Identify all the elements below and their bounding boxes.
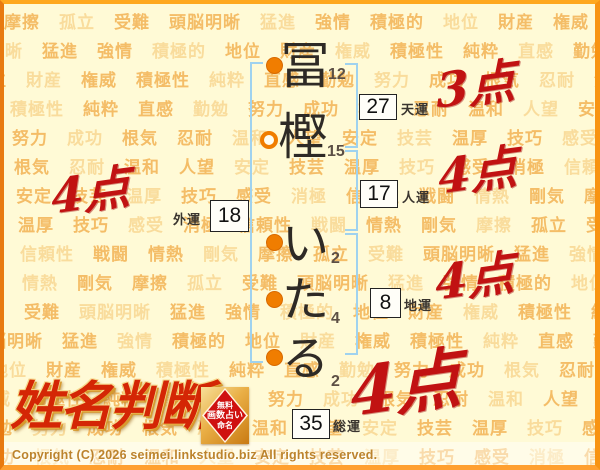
bg-word: 積極的	[172, 332, 226, 351]
bg-word: 努力	[374, 71, 410, 90]
bg-word: 強情	[315, 13, 351, 32]
bg-word: 純粋	[209, 71, 245, 90]
bg-word: 頭脳明晰	[169, 13, 241, 32]
bg-word: 情熱	[22, 274, 58, 293]
name-char-5: る	[282, 335, 329, 382]
stroke-count-1: 12	[328, 66, 346, 84]
copyright-text: Copyright (C) 2026 seimei.linkstudio.biz…	[12, 448, 377, 462]
bracket-gaiun	[250, 62, 263, 363]
bg-word: 積極性	[136, 71, 190, 90]
bg-word: 猛進	[260, 13, 296, 32]
bg-word: 純粋	[483, 332, 519, 351]
bg-word: 安定	[578, 100, 595, 119]
bg-word: 感受	[128, 216, 164, 235]
bg-word: 頭脳明晰	[4, 332, 43, 351]
bg-word: 忍耐	[177, 129, 213, 148]
bg-word: 摩擦	[132, 274, 168, 293]
bg-word: 感受	[582, 419, 595, 438]
bg-word: 孤立	[187, 274, 223, 293]
tenun-score: 3点	[436, 60, 516, 114]
bg-word: 権威	[335, 42, 371, 61]
bg-word: 純粋	[83, 100, 119, 119]
bg-word: 摩擦	[476, 216, 512, 235]
bg-word: 猛進	[62, 332, 98, 351]
bg-word: 勤勉	[573, 42, 595, 61]
bg-word: 剛気	[203, 245, 239, 264]
soun-value-box: 35	[292, 409, 330, 439]
bg-word: 摩擦	[584, 187, 595, 206]
bg-word: 信頼性	[20, 245, 74, 264]
bg-word: 権威	[81, 71, 117, 90]
bg-word: 積極的	[370, 13, 424, 32]
jinun-value-box: 17	[360, 180, 398, 208]
bg-word: 温厚	[472, 419, 508, 438]
gaiun-label: 外運	[173, 209, 201, 228]
bg-word: 積極性	[10, 100, 64, 119]
bg-word: 温和	[488, 390, 524, 409]
bg-word: 積極的	[152, 42, 206, 61]
bracket-jinun	[345, 150, 358, 231]
gaiun-value-box: 18	[210, 200, 249, 232]
bg-word: 地位	[571, 274, 595, 293]
bg-word: 強情	[569, 245, 595, 264]
bg-word: 直感	[518, 42, 554, 61]
jinun-score: 4点	[438, 146, 518, 200]
bg-word-row: 摩擦孤立受難頭脳明晰猛進強情積極的地位財産権威積極性純粋直感勤勉	[4, 8, 595, 33]
gaiun-score: 4点	[51, 166, 131, 220]
soun-score: 4点	[350, 348, 463, 423]
bg-word: 勤勉	[593, 332, 595, 351]
bg-word: 純粋	[229, 361, 265, 380]
stroke-count-4: 4	[331, 310, 340, 328]
bg-word: 地位	[225, 42, 261, 61]
bg-word: 猛進	[170, 303, 206, 322]
bg-word: 努力	[12, 129, 48, 148]
chiun-label: 地運	[404, 295, 432, 314]
bg-word: 感受	[562, 129, 595, 148]
bg-word: 根気	[122, 129, 158, 148]
bg-word: 安定	[16, 187, 52, 206]
chiun-value-box: 8	[370, 288, 401, 318]
seal-line-1: 無料	[217, 401, 233, 410]
bg-word: 温和	[252, 419, 288, 438]
stroke-count-3: 2	[331, 250, 340, 268]
bg-word: 積極性	[518, 303, 572, 322]
jinun-label: 人運	[402, 187, 430, 206]
bg-word: 受難	[368, 245, 404, 264]
bg-word: 孤立	[4, 303, 5, 322]
bg-word: 情熱	[148, 245, 184, 264]
name-char-4: た	[282, 276, 329, 323]
bg-word: 技巧	[527, 419, 563, 438]
name-char-3: い	[282, 220, 329, 267]
bg-word: 忍耐	[559, 361, 595, 380]
bg-word: 温厚	[126, 187, 162, 206]
bg-word: 人望	[179, 158, 215, 177]
stroke-count-2: 15	[327, 143, 345, 161]
bg-word: 成功	[67, 129, 103, 148]
bg-word: 受難	[24, 303, 60, 322]
site-logo[interactable]: 姓名判断	[10, 378, 210, 435]
bg-word: 人望	[543, 390, 579, 409]
bg-word: 権威	[553, 13, 589, 32]
seimei-handan-result-page: 摩擦孤立受難頭脳明晰猛進強情積極的地位財産権威積極性純粋直感勤勉頭脳明晰猛進強情…	[0, 0, 600, 470]
bg-word: 忍耐	[539, 71, 575, 90]
bg-word: 努力	[268, 390, 304, 409]
seal-text: 無料 画数占い 命名	[201, 387, 249, 444]
tenun-label: 天運	[401, 99, 429, 118]
bg-word: 地位	[4, 71, 7, 90]
bg-word: 孤立	[59, 13, 95, 32]
bg-word: 技芸	[397, 129, 433, 148]
bracket-tenun	[345, 63, 358, 148]
bg-word: 強情	[97, 42, 133, 61]
stroke-marker	[260, 131, 278, 149]
bg-word: 情熱	[366, 216, 402, 235]
bg-word: 摩擦	[4, 13, 40, 32]
seal-line-2: 画数占い	[207, 410, 243, 420]
bg-word: 直感	[138, 100, 174, 119]
bg-word: 強情	[117, 332, 153, 351]
bg-word: 純粋	[591, 303, 595, 322]
seal-badge-link[interactable]: 無料 画数占い 命名	[201, 387, 249, 444]
bg-word: 頭脳明晰	[4, 42, 23, 61]
stroke-marker	[266, 234, 283, 251]
stroke-marker	[266, 291, 283, 308]
bg-word: 勤勉	[193, 100, 229, 119]
bg-word: 財産	[498, 13, 534, 32]
bg-word: 消極	[291, 187, 327, 206]
bg-word: 直感	[538, 332, 574, 351]
name-char-1: 冨	[280, 41, 330, 91]
bg-word: 温厚	[18, 216, 54, 235]
bg-word: 剛気	[421, 216, 457, 235]
stroke-marker	[266, 349, 283, 366]
bg-word: 剛気	[77, 274, 113, 293]
tenun-value-box: 27	[359, 94, 397, 120]
bg-word: 人望	[523, 100, 559, 119]
bg-word: 地位	[443, 13, 479, 32]
bracket-chiun	[345, 233, 358, 355]
bg-word: 技巧	[399, 158, 435, 177]
bg-word: 根気	[504, 361, 540, 380]
bg-word: 剛気	[529, 187, 565, 206]
bg-word: 猛進	[514, 245, 550, 264]
bg-word: 財産	[26, 71, 62, 90]
bg-word: 受難	[586, 216, 595, 235]
stroke-count-5: 2	[331, 373, 340, 391]
bg-word: 信頼性	[564, 158, 595, 177]
seal-line-3: 命名	[217, 421, 233, 430]
bg-word: 戦闘	[93, 245, 129, 264]
bg-word: 温和	[594, 71, 595, 90]
chiun-score: 4点	[435, 252, 515, 306]
bg-word: 積極性	[390, 42, 444, 61]
bg-word: 受難	[114, 13, 150, 32]
bg-word: 孤立	[531, 216, 567, 235]
bg-word: 根気	[14, 158, 50, 177]
bg-word: 猛進	[42, 42, 78, 61]
bg-word: 頭脳明晰	[79, 303, 151, 322]
name-char-2: 樫	[278, 112, 328, 162]
